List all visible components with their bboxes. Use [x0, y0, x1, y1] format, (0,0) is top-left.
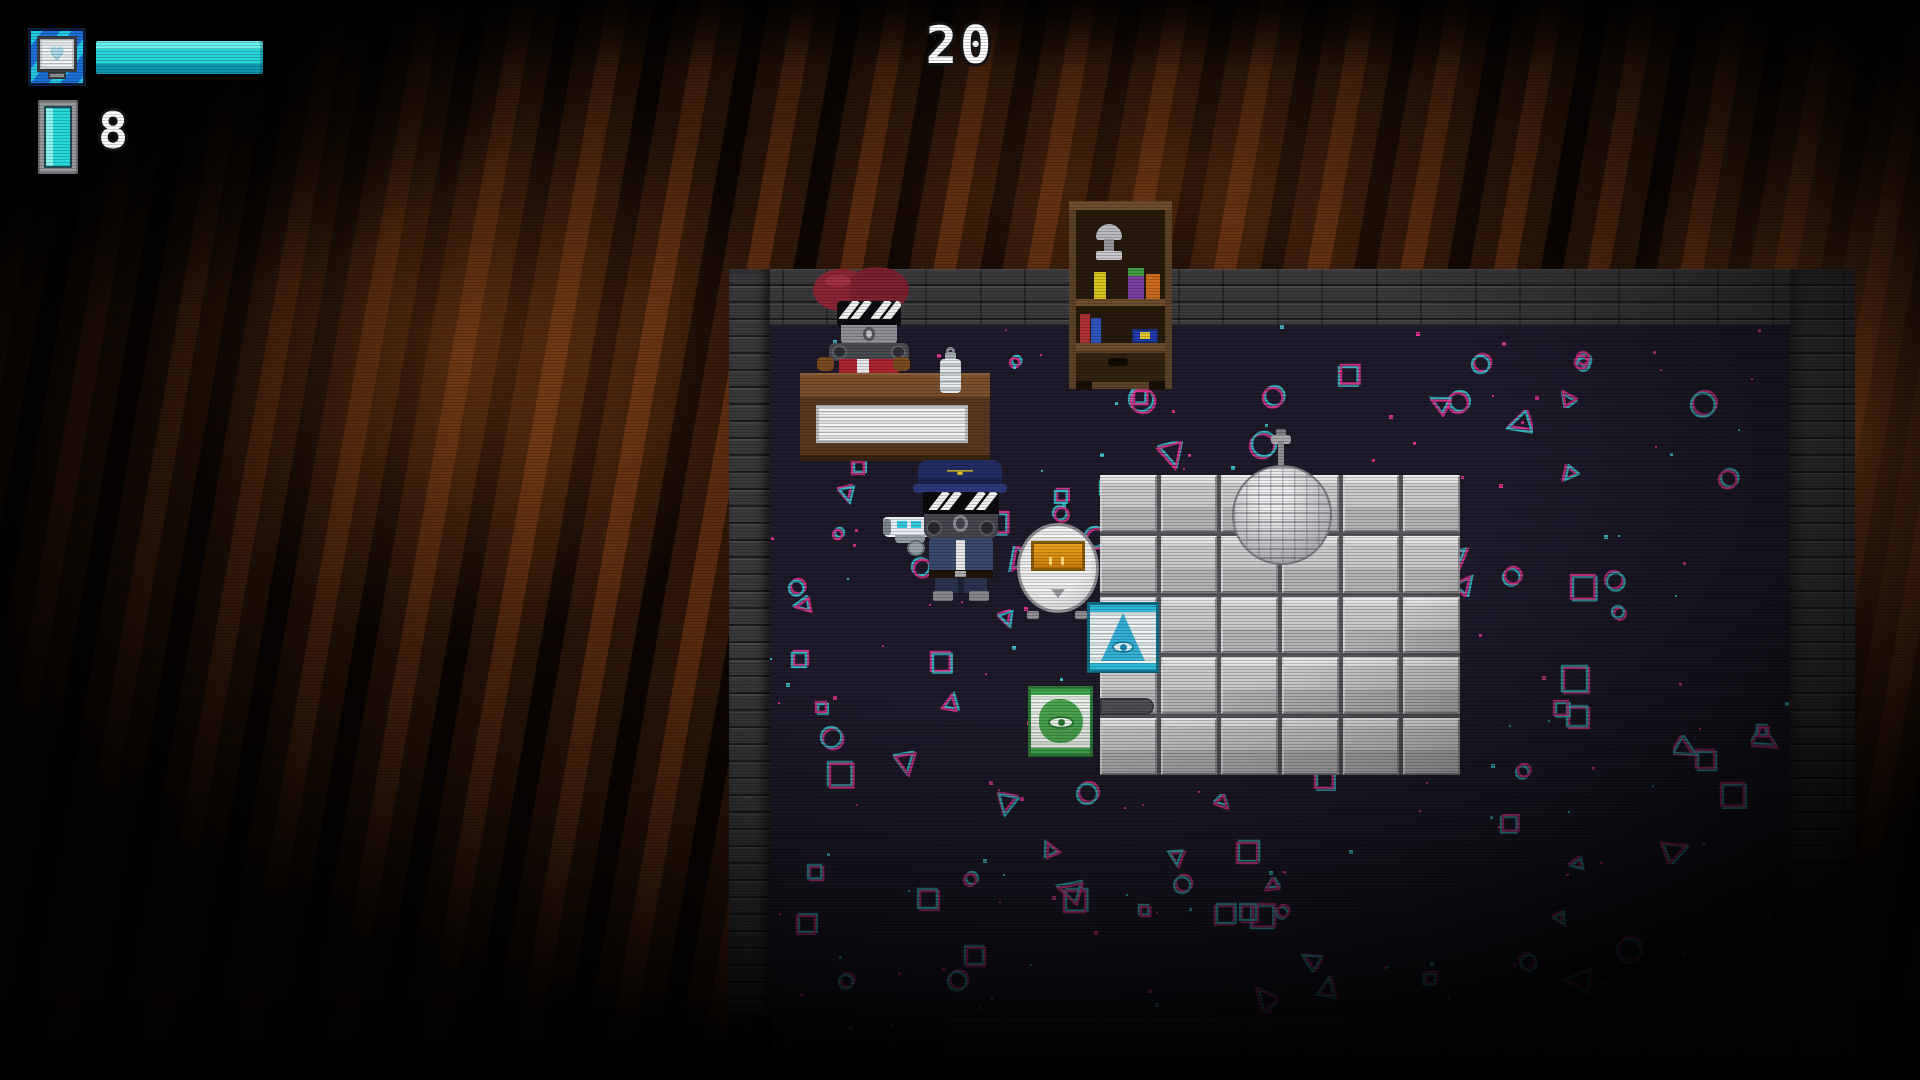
floor-tile	[1221, 718, 1278, 775]
red-book	[1080, 314, 1090, 343]
npc-sunglasses	[837, 301, 901, 327]
gun-muzzle	[883, 519, 891, 535]
panel-tick	[1049, 557, 1052, 565]
floor-tile	[1100, 475, 1157, 532]
desk-sign	[816, 405, 968, 443]
floor-pattern-dot	[789, 1037, 792, 1040]
game-viewport[interactable]	[729, 269, 1855, 1080]
floor-tile	[1161, 657, 1218, 714]
gun-cyan-window	[897, 521, 907, 528]
player-hand	[907, 540, 925, 556]
sign-band	[1090, 663, 1156, 670]
machine-foot	[1075, 611, 1087, 619]
floor-tile	[1403, 536, 1460, 593]
floor-tile	[1100, 536, 1157, 593]
uniform-strap	[956, 540, 965, 571]
green-book	[1128, 268, 1144, 276]
trophy-dome	[1096, 224, 1122, 240]
floor-tile	[1403, 657, 1460, 714]
eye-pupil	[1120, 644, 1127, 651]
panel-tick	[1061, 557, 1064, 565]
player-boot	[969, 591, 989, 601]
purple-book	[1128, 276, 1144, 299]
floor-tile	[1161, 475, 1218, 532]
blue-book	[1091, 318, 1101, 343]
npc-fist	[893, 357, 910, 371]
floor-pattern-dot	[860, 1035, 863, 1038]
floor-tile	[1343, 597, 1400, 654]
floor-tile	[1221, 657, 1278, 714]
shoulder-pad	[832, 345, 847, 359]
bookshelf-foot	[1076, 381, 1092, 390]
mask-pod	[979, 520, 995, 536]
yellow-book	[1094, 272, 1106, 299]
bookshelf-cornice	[1069, 201, 1172, 210]
floor-tile	[1282, 718, 1339, 775]
mask-filter-ring	[953, 515, 968, 532]
floor-tile	[1403, 475, 1460, 532]
bookshelf[interactable]	[1069, 203, 1172, 389]
npc-fist	[817, 357, 834, 371]
green-eye-sign	[1028, 686, 1093, 757]
orange-book	[1146, 274, 1160, 299]
floor-tile	[1161, 718, 1218, 775]
mask-pod	[926, 520, 942, 536]
sign-band	[1031, 689, 1090, 695]
machine-orange-panel	[1031, 541, 1085, 571]
floor-pattern-dot	[889, 1032, 892, 1035]
trophy-icon	[1094, 224, 1124, 262]
wall-bottom	[950, 1018, 1790, 1080]
bookshelf-foot	[1149, 381, 1165, 390]
trophy-stem	[1104, 239, 1114, 251]
game-screen: 20 ♥ 8	[0, 0, 1920, 1080]
player-sunglasses	[923, 492, 999, 515]
shelf-board	[1076, 299, 1165, 306]
bookshelf-drawer	[1076, 350, 1165, 382]
gun-cyan-window	[911, 521, 921, 528]
floor-tile	[1403, 597, 1460, 654]
floor-tile	[1343, 718, 1400, 775]
player-gas-mask	[924, 514, 998, 539]
disco-ball	[1230, 429, 1334, 579]
round-machine[interactable]	[1017, 523, 1099, 619]
npc-hair-highlight	[825, 275, 851, 287]
floor-tile	[1100, 718, 1157, 775]
drawer-handle	[1108, 358, 1128, 366]
floor-tile	[1221, 597, 1278, 654]
floor-tile	[1282, 597, 1339, 654]
wall-left	[729, 269, 770, 1018]
eye-pupil	[1058, 719, 1065, 726]
doorway-dirt	[772, 1053, 950, 1080]
capsule-prop	[1100, 698, 1154, 715]
mask-filter-ring	[863, 327, 875, 341]
floor-tile	[1403, 718, 1460, 775]
floor-pattern-dot	[891, 1043, 894, 1046]
floor-tile	[1282, 657, 1339, 714]
player-boot	[933, 591, 953, 601]
emblem-badge	[1140, 332, 1150, 339]
sign-band	[1090, 605, 1156, 612]
doorway-floor[interactable]	[772, 1018, 950, 1053]
desk-bottle	[938, 349, 963, 393]
player-character[interactable]	[883, 460, 1009, 602]
floor-pattern-dot	[774, 1040, 777, 1043]
machine-foot	[1027, 611, 1039, 619]
floor-tile	[1343, 475, 1400, 532]
trophy-base	[1096, 251, 1122, 260]
wall-right	[1790, 269, 1855, 1080]
pyramid-icon	[1101, 613, 1145, 661]
floor-pattern-dot	[891, 1023, 894, 1026]
floor-pattern-dot	[848, 1027, 851, 1030]
sign-band	[1031, 748, 1090, 754]
bottle-body	[940, 359, 961, 393]
floor-tile	[1161, 597, 1218, 654]
floor-pattern-dot	[796, 1019, 799, 1022]
floor-tile	[1161, 536, 1218, 593]
shopkeeper-npc[interactable]	[813, 267, 913, 375]
floor-tile	[1343, 536, 1400, 593]
floor-tile	[1343, 657, 1400, 714]
belt-buckle	[955, 571, 966, 577]
shelf-board	[1076, 343, 1165, 350]
disco-ball-sphere	[1232, 465, 1332, 565]
leg-gap	[958, 578, 964, 593]
floor-pattern-dot	[787, 1044, 790, 1047]
